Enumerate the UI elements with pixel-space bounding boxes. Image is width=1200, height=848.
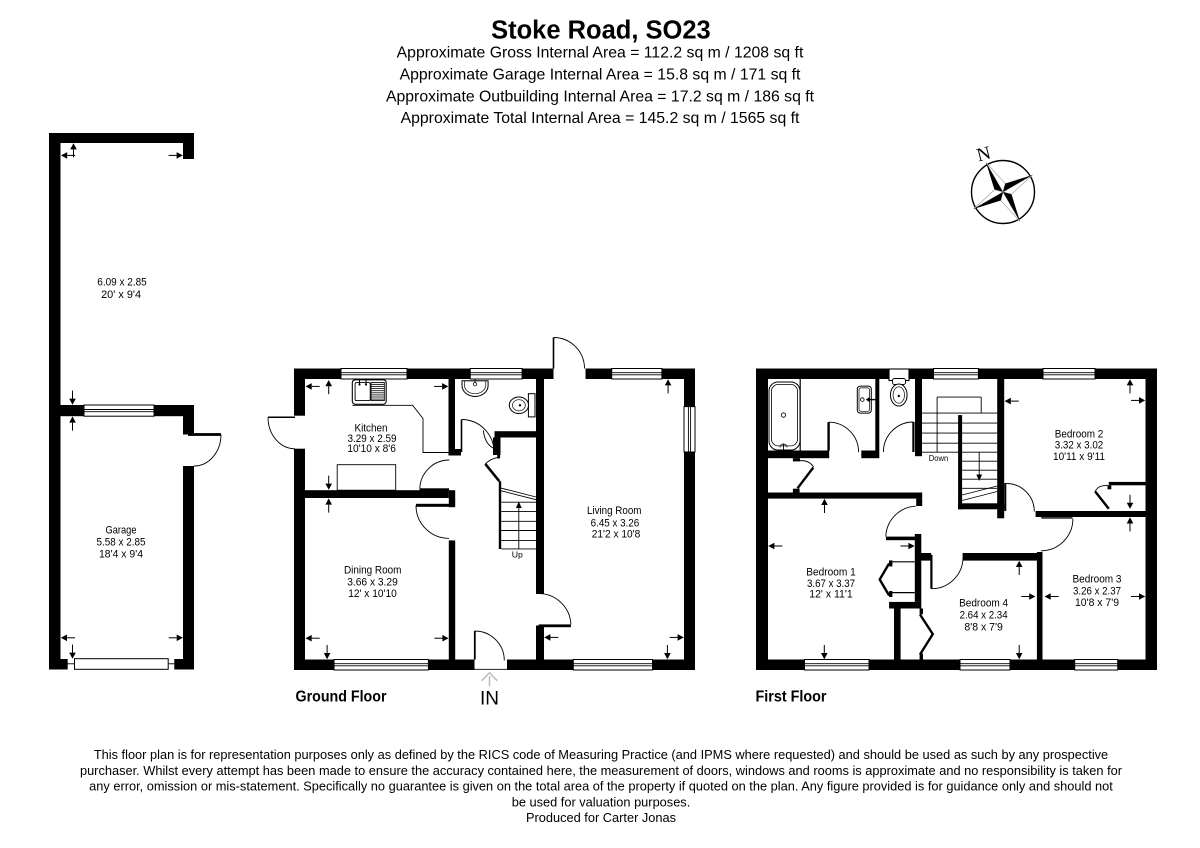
svg-text:10'8 x 7'9: 10'8 x 7'9 — [1075, 597, 1119, 609]
svg-text:20' x 9'4: 20' x 9'4 — [101, 289, 141, 301]
svg-text:Approximate Outbuilding Intern: Approximate Outbuilding Internal Area = … — [386, 88, 815, 105]
svg-text:Up: Up — [512, 550, 523, 560]
svg-text:Bedroom 2: Bedroom 2 — [1055, 429, 1104, 441]
svg-text:purchaser. Whilst every attemp: purchaser. Whilst every attempt has been… — [80, 763, 1123, 778]
svg-text:Approximate Gross Internal Are: Approximate Gross Internal Area = 112.2 … — [397, 45, 804, 62]
svg-text:6.09 x 2.85: 6.09 x 2.85 — [97, 277, 147, 289]
svg-text:Ground Floor: Ground Floor — [296, 688, 387, 705]
svg-text:Bedroom 4: Bedroom 4 — [959, 597, 1008, 609]
svg-text:any error, omission or mis-sta: any error, omission or mis-statement. Sp… — [89, 779, 1113, 794]
svg-text:12' x 10'10: 12' x 10'10 — [348, 588, 397, 600]
svg-text:Dining Room: Dining Room — [344, 565, 402, 577]
svg-text:IN: IN — [480, 688, 499, 709]
svg-text:Living Room: Living Room — [587, 505, 642, 517]
svg-text:be used for valuation purposes: be used for valuation purposes. — [512, 794, 691, 809]
svg-text:Down: Down — [929, 453, 949, 463]
svg-text:Garage: Garage — [106, 525, 137, 537]
svg-text:2.64 x 2.34: 2.64 x 2.34 — [960, 610, 1008, 622]
svg-text:Approximate Total Internal Are: Approximate Total Internal Area = 145.2 … — [401, 110, 800, 127]
svg-text:3.32 x 3.02: 3.32 x 3.02 — [1055, 440, 1104, 452]
svg-text:12' x 11'1: 12' x 11'1 — [809, 589, 853, 601]
svg-text:21'2 x 10'8: 21'2 x 10'8 — [592, 528, 641, 540]
svg-text:3.26 x 2.37: 3.26 x 2.37 — [1073, 585, 1121, 597]
svg-text:First Floor: First Floor — [756, 688, 827, 705]
svg-text:Approximate Garage Internal Ar: Approximate Garage Internal Area = 15.8 … — [400, 67, 801, 84]
svg-text:10'11 x 9'11: 10'11 x 9'11 — [1053, 451, 1105, 463]
svg-text:This floor plan is for represe: This floor plan is for representation pu… — [94, 747, 1108, 762]
svg-text:5.58 x 2.85: 5.58 x 2.85 — [97, 537, 146, 549]
svg-text:Produced for Carter Jonas: Produced for Carter Jonas — [526, 810, 676, 825]
svg-text:10'10 x 8'6: 10'10 x 8'6 — [347, 443, 396, 455]
svg-text:3.66 x 3.29: 3.66 x 3.29 — [347, 577, 398, 589]
svg-text:18'4 x 9'4: 18'4 x 9'4 — [99, 548, 143, 560]
svg-text:Bedroom 3: Bedroom 3 — [1073, 574, 1122, 586]
svg-text:Stoke Road, SO23: Stoke Road, SO23 — [491, 17, 711, 45]
svg-text:8'8 x 7'9: 8'8 x 7'9 — [964, 622, 1003, 634]
svg-text:Bedroom 1: Bedroom 1 — [806, 566, 856, 578]
